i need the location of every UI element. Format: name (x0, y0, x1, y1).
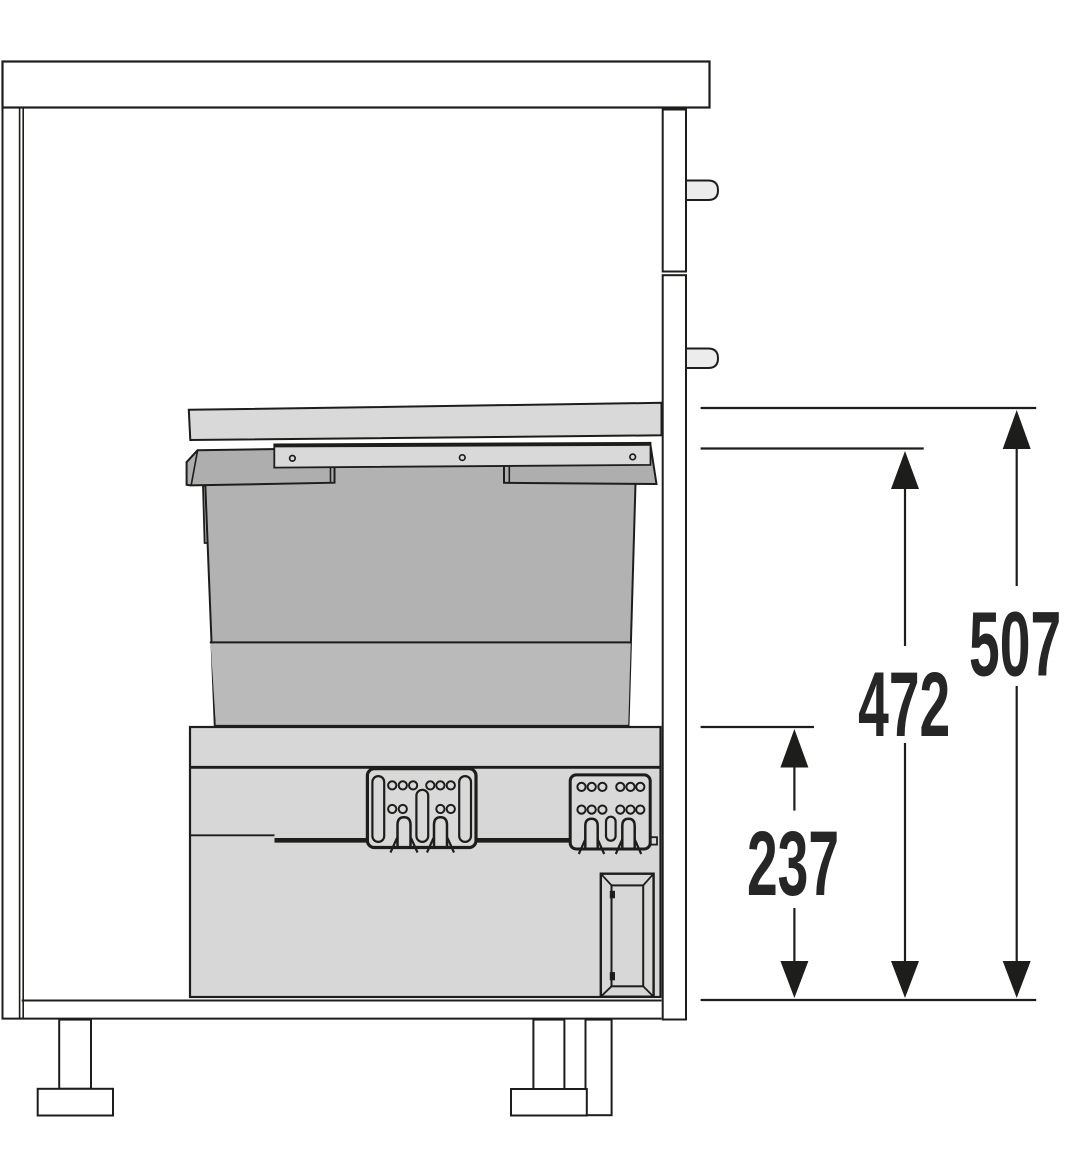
svg-text:507: 507 (969, 593, 1061, 696)
svg-text:472: 472 (858, 654, 950, 757)
svg-text:237: 237 (747, 813, 839, 916)
